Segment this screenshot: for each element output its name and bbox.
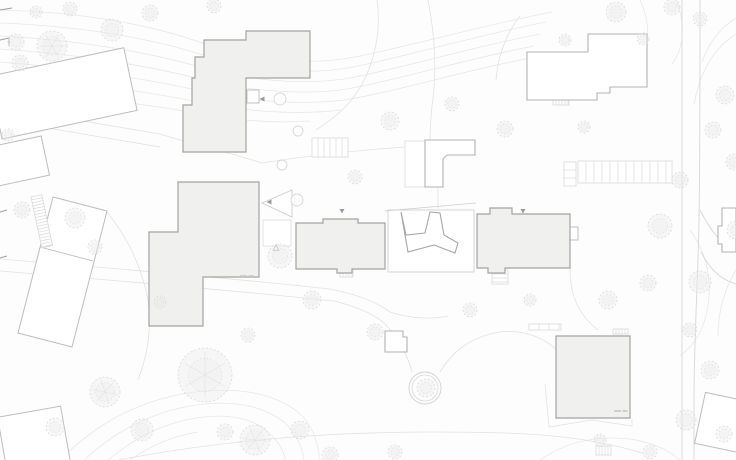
tree — [388, 445, 402, 459]
tree — [178, 348, 232, 402]
building-northeast — [527, 34, 647, 100]
tree — [726, 154, 736, 170]
road-edge — [694, 0, 700, 460]
elevation-mark — [240, 275, 254, 277]
tree-canopy-inner — [653, 219, 668, 234]
tree-canopy-inner — [500, 124, 510, 134]
tree-canopy-inner — [708, 125, 718, 135]
tree — [672, 172, 688, 188]
tree — [303, 291, 321, 309]
entrance-arrow-icon — [521, 209, 526, 214]
tree — [701, 361, 719, 379]
tree-canopy-inner — [4, 131, 11, 138]
tree-canopy-inner — [306, 294, 317, 305]
tree — [693, 12, 707, 26]
clipped-building-edge — [0, 256, 7, 258]
walkway — [440, 331, 562, 372]
parking-cells-east — [564, 162, 576, 186]
parking-cells-east-frame — [564, 162, 576, 186]
elevation-mark-dash — [240, 275, 247, 277]
tree — [90, 377, 120, 407]
tree-canopy-inner — [220, 427, 230, 437]
tree — [207, 0, 221, 13]
context-southwest-long — [18, 197, 107, 347]
tree-canopy-inner — [384, 115, 395, 126]
tree-canopy-inner — [526, 296, 533, 303]
tree-canopy-inner — [105, 23, 119, 37]
tree — [367, 324, 383, 340]
annex-east-stair — [570, 227, 578, 240]
tree-canopy-inner — [210, 2, 219, 11]
tree-canopy-inner — [719, 429, 729, 439]
tree-canopy-inner — [693, 275, 707, 289]
tree — [63, 2, 77, 16]
walkway — [570, 268, 598, 330]
building-south — [556, 336, 630, 418]
tree-canopy-inner — [15, 58, 25, 68]
bike-racks-south-building — [529, 324, 561, 330]
tree — [640, 275, 656, 291]
tree — [683, 323, 697, 337]
clipped-building-edge — [0, 8, 12, 10]
tree — [637, 33, 649, 45]
tree — [12, 55, 28, 71]
tree-canopy-inner — [448, 100, 457, 109]
walkway — [107, 212, 150, 380]
tree-canopy-inner — [370, 327, 380, 337]
entrance-arrow-icon — [340, 209, 345, 214]
shrub-ring — [277, 160, 287, 170]
tree — [88, 240, 102, 254]
building-center-small-l — [425, 140, 475, 187]
tree-canopy-inner — [639, 35, 646, 42]
tree — [46, 418, 64, 436]
tree-canopy-inner — [610, 6, 622, 18]
tree-canopy-inner — [646, 448, 655, 457]
walkway — [316, 0, 378, 130]
tree — [578, 121, 590, 133]
building-center-west — [296, 219, 385, 273]
walkway — [496, 16, 520, 80]
tree — [142, 5, 158, 21]
tree — [705, 122, 721, 138]
tree — [268, 244, 292, 268]
bike-racks-south — [596, 446, 611, 455]
tree-canopy-inner — [145, 8, 155, 18]
tree — [643, 445, 657, 459]
elevation-mark — [614, 410, 628, 412]
tree-canopy-inner — [602, 294, 613, 305]
tree-canopy-inner — [91, 243, 100, 252]
tree-canopy-inner — [580, 123, 587, 130]
tree — [381, 112, 399, 130]
tree — [664, 0, 680, 15]
tree-canopy-inner — [69, 212, 81, 224]
tree — [445, 97, 459, 111]
tree-canopy-inner — [675, 175, 685, 185]
tree-canopy-inner — [66, 5, 75, 14]
tree-canopy-inner — [696, 15, 705, 24]
tree — [497, 121, 513, 137]
tree — [8, 34, 24, 50]
building-west — [149, 182, 259, 326]
tree — [154, 296, 166, 308]
tree-canopy-inner — [596, 436, 603, 443]
tree — [417, 379, 435, 397]
tree — [2, 129, 14, 141]
tree-canopy-inner — [294, 424, 305, 435]
tree — [217, 424, 233, 440]
tree-canopy-inner — [729, 157, 736, 167]
bike-racks-south-frame — [596, 446, 611, 455]
contour-line — [702, 18, 736, 62]
shrub-ring — [274, 93, 286, 105]
tree-canopy-inner — [561, 36, 568, 43]
tree-canopy-inner — [11, 37, 21, 47]
bike-racks-south-building-frame — [529, 324, 561, 330]
tree-canopy-inner — [17, 205, 27, 215]
tree — [559, 34, 571, 46]
tree — [291, 421, 309, 439]
tree — [101, 19, 123, 41]
tree-canopy-inner — [667, 2, 677, 12]
tree-canopy-inner — [686, 326, 695, 335]
tree-canopy-inner — [32, 8, 39, 15]
clipped-building-edge — [0, 210, 7, 212]
tree-canopy-inner — [680, 414, 692, 426]
annex-entry-north — [247, 90, 259, 103]
tree — [716, 86, 734, 104]
tree — [689, 271, 711, 293]
parking-row-east — [578, 161, 672, 183]
tree — [463, 303, 477, 317]
walkway — [334, 301, 384, 323]
building-south-hut — [385, 331, 407, 352]
shrub-ring — [293, 126, 303, 136]
tree-canopy-inner — [420, 382, 431, 393]
tree — [648, 214, 672, 238]
tree-canopy-inner — [135, 423, 149, 437]
shrub-ring — [291, 194, 303, 206]
tree-canopy-inner — [49, 421, 60, 432]
site-plan-canvas — [0, 0, 736, 460]
contour-line — [84, 403, 304, 460]
context-southeast-corner — [695, 392, 736, 453]
context-west-small — [0, 136, 49, 188]
terrace-steps-north — [312, 138, 348, 157]
tree — [240, 425, 270, 455]
tree-canopy-inner — [391, 448, 400, 457]
tree-canopy-inner — [719, 89, 730, 100]
tree — [37, 31, 67, 61]
elevation-mark-dash — [623, 410, 628, 412]
walkway — [330, 289, 390, 312]
tree — [30, 6, 42, 18]
tree-canopy-inner — [466, 306, 475, 315]
tree — [131, 419, 153, 441]
tree-canopy-inner — [351, 173, 360, 182]
annex-canopy-west — [405, 141, 425, 187]
tree-canopy-inner — [244, 331, 253, 340]
stair-south-building — [613, 329, 628, 334]
ramp-west — [262, 190, 292, 217]
tree — [716, 426, 732, 442]
tree — [676, 410, 696, 430]
tree — [594, 434, 606, 446]
contour-line — [680, 230, 709, 356]
tree — [606, 2, 626, 22]
elevation-mark-dash — [614, 410, 621, 412]
tree-canopy-inner — [325, 450, 335, 460]
tree — [65, 208, 85, 228]
elevation-mark-dash — [249, 275, 254, 277]
layer-buildings — [149, 31, 736, 418]
tree — [322, 447, 338, 460]
tree — [241, 328, 255, 342]
tree — [599, 291, 617, 309]
stair-south-building-frame — [613, 329, 628, 334]
tree-canopy-inner — [643, 278, 653, 288]
annex-plaza-box — [263, 220, 291, 246]
tree — [14, 202, 30, 218]
tree-canopy-inner — [156, 298, 163, 305]
building-center-east — [477, 208, 570, 273]
tree-canopy-inner — [704, 364, 715, 375]
walkway — [390, 312, 448, 318]
walkway — [118, 432, 642, 460]
tree — [348, 170, 362, 184]
tree — [524, 294, 536, 306]
site-plan — [0, 0, 736, 460]
